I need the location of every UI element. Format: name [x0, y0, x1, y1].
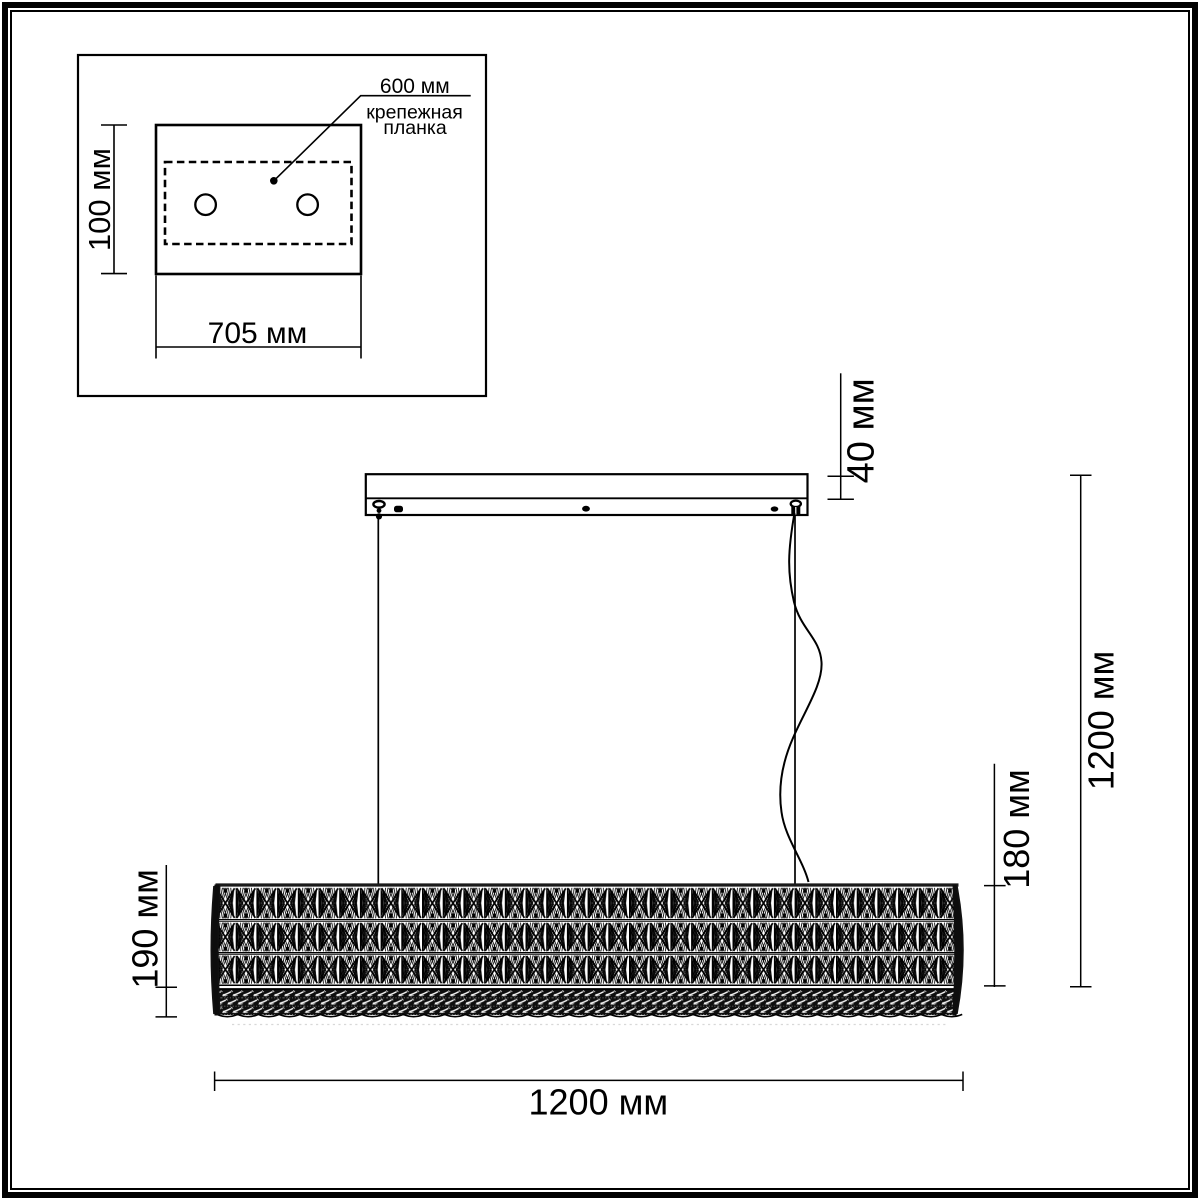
svg-text:100 мм: 100 мм: [82, 148, 117, 251]
svg-text:600 мм: 600 мм: [380, 75, 450, 98]
svg-text:планка: планка: [383, 117, 447, 139]
svg-text:190 мм: 190 мм: [124, 869, 165, 989]
svg-text:705 мм: 705 мм: [208, 317, 308, 350]
svg-text:1200 мм: 1200 мм: [529, 1082, 669, 1123]
svg-text:40 мм: 40 мм: [841, 378, 883, 483]
svg-text:1200 мм: 1200 мм: [1081, 651, 1122, 791]
svg-text:180 мм: 180 мм: [996, 769, 1037, 889]
